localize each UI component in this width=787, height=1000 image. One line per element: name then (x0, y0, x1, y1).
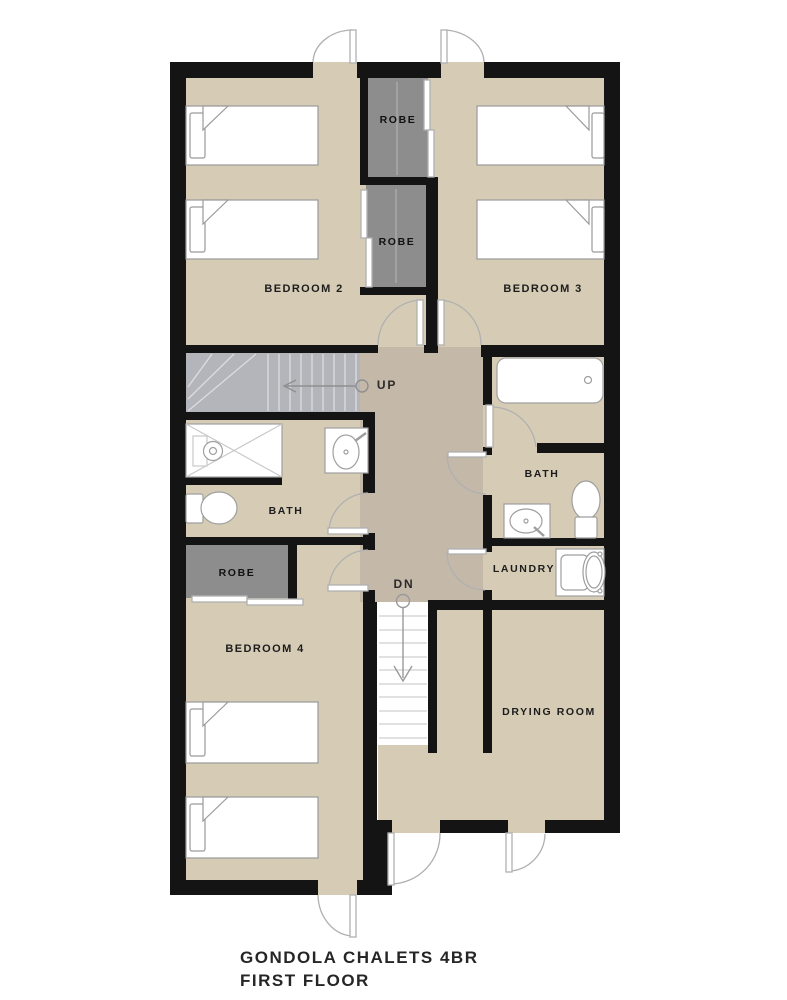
sliding-door-panel (361, 190, 367, 238)
toilet-icon-left-bath (186, 492, 237, 524)
room-label-bedroom3: BEDROOM 3 (503, 283, 582, 295)
sink-icon-left-bath (325, 428, 368, 473)
wall-segment (170, 412, 366, 420)
wall-segment (483, 590, 492, 602)
room-label-robe-top: ROBE (380, 114, 417, 126)
wall-segment (170, 477, 282, 485)
door-arc-south-hall-exterior (391, 833, 440, 884)
door-arc-bedroom4-exterior (318, 895, 353, 936)
door-leaf (486, 405, 493, 447)
wall-segment (481, 345, 605, 357)
door-leaf (328, 585, 368, 591)
wall-segment (426, 177, 438, 353)
bed-bedroom2-1 (186, 106, 318, 165)
sliding-door-panel (428, 130, 434, 177)
door-leaf (328, 528, 368, 534)
wall-segment (186, 345, 378, 353)
room-label-bedroom2: BEDROOM 2 (264, 283, 343, 295)
wall-segment (170, 537, 374, 545)
room-label-bath-right: BATH (525, 468, 560, 480)
shower-icon (186, 424, 282, 477)
bed-bedroom3-1 (477, 106, 604, 165)
door-arc-drying-room-exterior (511, 834, 545, 871)
wall-segment (360, 78, 368, 185)
bed-bedroom3-2 (477, 200, 604, 259)
plan-title-line2: FIRST FLOOR (240, 969, 479, 992)
wall-segment (440, 820, 508, 833)
bed-bedroom4-2 (186, 797, 318, 858)
bed-bedroom2-2 (186, 200, 318, 259)
door-leaf (350, 30, 356, 63)
wall-segment (363, 590, 375, 602)
washing-machine-icon (556, 549, 605, 596)
wall-segment (483, 602, 492, 753)
plan-title-line1: GONDOLA CHALETS 4BR (240, 946, 479, 969)
wall-segment (360, 287, 438, 295)
wall-segment (357, 62, 441, 78)
sliding-door-panel (247, 599, 303, 605)
floor-plan: BEDROOM 2 BEDROOM 3 BEDROOM 4 ROBE ROBE … (0, 0, 787, 1000)
sink-icon-right-bath (504, 504, 550, 538)
door-leaf (448, 549, 486, 554)
door-leaf (438, 300, 444, 345)
door-arc-bedroom3-exterior (446, 30, 484, 62)
room-label-robe-bedroom4: ROBE (219, 567, 256, 579)
door-leaf (448, 452, 486, 457)
bed-bedroom4-1 (186, 702, 318, 763)
wall-segment (288, 537, 297, 603)
stairs-up-label: UP (377, 378, 397, 392)
door-arc-bedroom2-exterior (313, 30, 353, 62)
wall-segment (363, 602, 377, 882)
wall-segment (537, 443, 605, 453)
wall-segment (483, 538, 605, 546)
wall-segment (428, 602, 437, 753)
stairs-dn-label: DN (394, 577, 415, 591)
wall-segment (170, 62, 313, 78)
wall-segment (360, 177, 428, 185)
sliding-door-panel (192, 596, 247, 602)
room-label-drying-room: DRYING ROOM (502, 706, 596, 718)
sliding-door-panel (424, 80, 430, 130)
wall-segment (424, 345, 437, 353)
door-leaf (441, 30, 447, 63)
wall-segment (545, 820, 620, 833)
door-leaf (506, 833, 512, 872)
wall-segment (170, 880, 318, 895)
floor-plan-graphics (0, 0, 787, 1000)
door-leaf (388, 833, 394, 885)
wall-segment (484, 62, 620, 78)
wall-segment (428, 600, 605, 610)
room-label-laundry: LAUNDRY (493, 563, 555, 575)
room-label-bedroom4: BEDROOM 4 (225, 643, 304, 655)
bathtub-icon (497, 358, 603, 403)
door-leaf (417, 300, 423, 345)
wall-segment (604, 62, 620, 833)
room-label-robe-middle: ROBE (379, 236, 416, 248)
room-label-bath-left: BATH (269, 505, 304, 517)
sliding-door-panel (366, 238, 372, 287)
plan-title: GONDOLA CHALETS 4BR FIRST FLOOR (240, 946, 479, 992)
wall-segment (483, 347, 492, 405)
toilet-icon-right-bath (572, 481, 600, 538)
door-leaf (350, 895, 356, 937)
